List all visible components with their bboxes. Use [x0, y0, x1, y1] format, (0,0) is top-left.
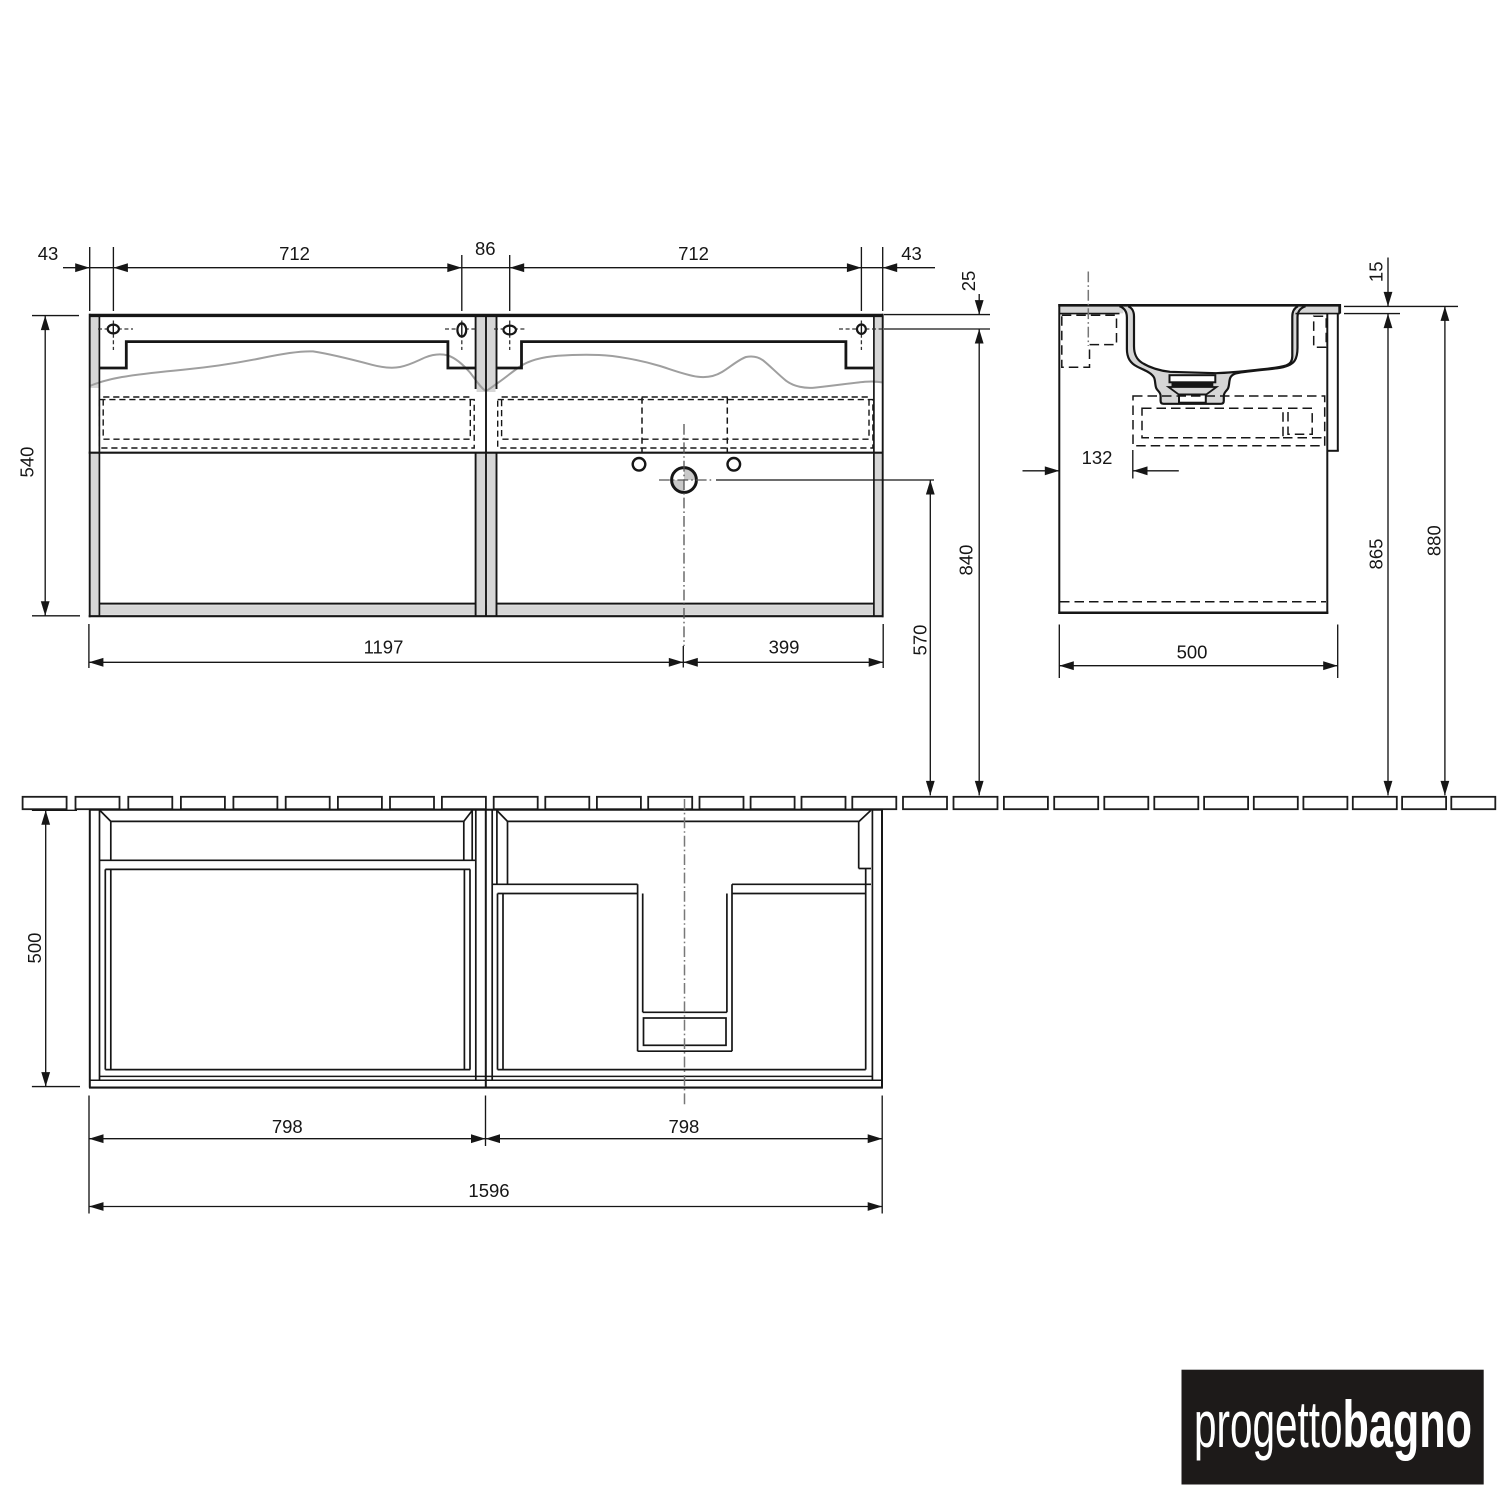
svg-text:bagno: bagno	[1343, 1387, 1473, 1461]
svg-text:865: 865	[1365, 539, 1386, 570]
svg-text:1197: 1197	[364, 637, 404, 658]
svg-text:712: 712	[279, 243, 310, 264]
svg-text:840: 840	[955, 545, 976, 576]
svg-text:43: 43	[901, 243, 922, 264]
svg-text:798: 798	[272, 1116, 303, 1137]
svg-text:540: 540	[17, 447, 38, 478]
svg-text:798: 798	[668, 1116, 699, 1137]
svg-text:43: 43	[38, 243, 59, 264]
svg-text:880: 880	[1423, 525, 1444, 556]
svg-text:1596: 1596	[468, 1180, 509, 1201]
svg-text:15: 15	[1365, 262, 1386, 283]
svg-text:500: 500	[1177, 642, 1208, 663]
svg-text:570: 570	[909, 625, 930, 656]
svg-text:399: 399	[769, 637, 800, 658]
svg-text:progetto: progetto	[1194, 1387, 1343, 1461]
svg-text:500: 500	[24, 933, 45, 964]
svg-text:132: 132	[1082, 447, 1113, 468]
svg-text:86: 86	[475, 238, 496, 259]
svg-text:712: 712	[678, 243, 709, 264]
svg-text:25: 25	[958, 271, 979, 292]
